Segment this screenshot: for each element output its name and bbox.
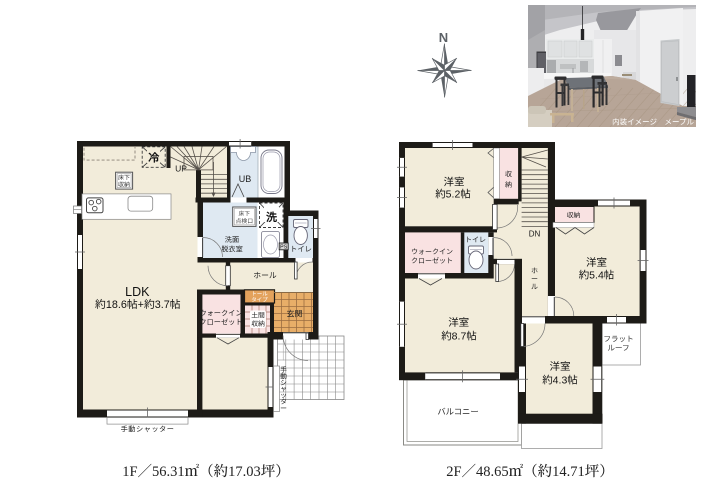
svg-text:ル: ル: [531, 283, 538, 291]
svg-text:UB: UB: [239, 174, 252, 184]
svg-text:洗面: 洗面: [225, 235, 239, 244]
svg-text:タイプ: タイプ: [251, 297, 268, 304]
svg-text:1F／56.31㎡（約17.03坪）: 1F／56.31㎡（約17.03坪）: [122, 463, 290, 480]
svg-text:収納: 収納: [567, 212, 581, 220]
svg-text:ー: ー: [531, 276, 538, 283]
svg-text:洋室: 洋室: [444, 177, 465, 189]
svg-text:ー: ー: [280, 405, 287, 412]
svg-text:PS: PS: [280, 245, 288, 251]
svg-text:ウォークイン: ウォークイン: [199, 309, 242, 318]
svg-text:ルーフ: ルーフ: [607, 344, 629, 353]
svg-text:トイレ: トイレ: [465, 236, 486, 244]
svg-text:DN: DN: [529, 230, 541, 239]
svg-text:納: 納: [505, 181, 512, 189]
svg-text:土間: 土間: [251, 312, 265, 320]
svg-text:洗: 洗: [266, 211, 277, 224]
svg-text:約18.6帖+約3.7帖: 約18.6帖+約3.7帖: [95, 298, 181, 311]
svg-text:UP: UP: [175, 164, 187, 174]
svg-text:洋室: 洋室: [586, 257, 607, 269]
svg-text:フラット: フラット: [603, 335, 633, 344]
svg-text:約8.7帖: 約8.7帖: [441, 331, 477, 343]
svg-text:ホール: ホール: [253, 271, 277, 280]
svg-text:内装イメージ メープル: 内装イメージ メープル: [612, 118, 694, 127]
svg-text:玄関: 玄関: [287, 310, 303, 319]
svg-text:トイレ: トイレ: [290, 245, 312, 254]
svg-text:ウォークイン: ウォークイン: [411, 248, 453, 256]
svg-text:床下: 床下: [238, 211, 250, 218]
svg-text:点検口: 点検口: [236, 218, 254, 225]
svg-text:約5.4帖: 約5.4帖: [579, 270, 615, 282]
svg-text:トール: トール: [251, 290, 268, 297]
svg-text:N: N: [439, 30, 448, 45]
svg-text:2F／48.65㎡（約14.71坪）: 2F／48.65㎡（約14.71坪）: [446, 463, 614, 480]
svg-text:収納: 収納: [251, 320, 265, 328]
svg-text:手動シャッター: 手動シャッター: [121, 425, 175, 434]
svg-text:ホ: ホ: [531, 267, 538, 275]
svg-text:床下: 床下: [118, 174, 130, 182]
svg-text:約4.3帖: 約4.3帖: [542, 375, 578, 387]
svg-text:冷: 冷: [148, 152, 160, 165]
svg-text:収納: 収納: [118, 181, 130, 189]
svg-text:バルコニー: バルコニー: [437, 407, 478, 417]
svg-text:洋室: 洋室: [550, 361, 571, 373]
svg-text:収: 収: [505, 171, 512, 179]
svg-text:LDK: LDK: [125, 285, 150, 299]
svg-text:脱衣室: 脱衣室: [221, 245, 243, 254]
svg-text:約5.2帖: 約5.2帖: [435, 189, 471, 201]
svg-text:クローゼット: クローゼット: [411, 257, 453, 265]
svg-text:洋室: 洋室: [448, 317, 469, 329]
svg-text:クローゼット: クローゼット: [199, 318, 242, 327]
